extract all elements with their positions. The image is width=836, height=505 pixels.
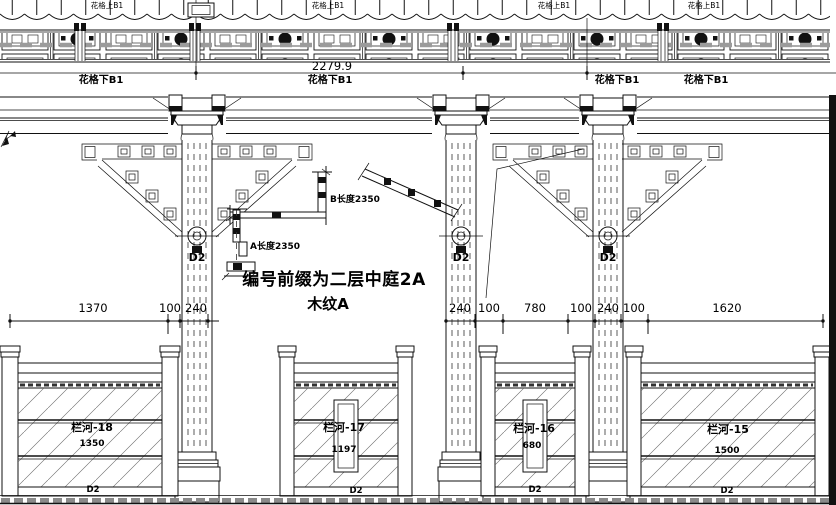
railing-panel-3 (479, 346, 591, 496)
detail-a-label: A长度2350 (250, 243, 300, 252)
panel-1-length: 1350 (79, 440, 104, 449)
dim-right-2: 780 (524, 303, 546, 315)
sheet-right-border (829, 95, 836, 505)
panel-3-name: 栏河-16 (513, 423, 555, 434)
dim-right-1: 100 (478, 303, 500, 315)
band-upper-label-1: 花格上B1 (91, 2, 123, 10)
title-line-1: 编号前缀为二层中庭2A (242, 272, 426, 289)
band-dimension-text: 2279.9 (312, 61, 352, 73)
band-lower-label-4: 花格下B1 (684, 76, 729, 86)
panel-1-mark: D2 (87, 486, 100, 495)
dim-left-1: 100 (159, 303, 181, 315)
column-3-mark: D2 (600, 252, 617, 263)
panel-3-length: 680 (523, 442, 542, 451)
band-lower-label-3: 花格下B1 (595, 76, 640, 86)
detail-b-label: B长度2350 (330, 196, 380, 205)
band-lower-label-2: 花格下B1 (308, 76, 353, 86)
column-2-mark: D2 (453, 252, 470, 263)
panel-4-mark: D2 (721, 487, 734, 496)
railing-panel-4 (625, 346, 831, 496)
cad-elevation-drawing: 花格上B1 花格上B1 花格上B1 花格上B1 2279.9 花格下B1 花格下… (0, 0, 836, 505)
dim-right-4: 240 (597, 303, 619, 315)
detail-b (226, 166, 332, 225)
panel-1-name: 栏河-18 (71, 422, 113, 433)
panel-2-mark: D2 (350, 487, 363, 496)
floor-strip (0, 496, 836, 504)
panel-4-name: 栏河-15 (707, 424, 749, 435)
dim-left-2: 240 (185, 303, 207, 315)
panel-2-name: 栏河-17 (323, 422, 365, 433)
main-dimension-line (8, 314, 824, 334)
band-upper-label-4: 花格上B1 (688, 2, 720, 10)
panel-3-mark: D2 (529, 486, 542, 495)
dim-right-0: 240 (449, 303, 471, 315)
dim-right-3: 100 (570, 303, 592, 315)
column-1-mark: D2 (189, 252, 206, 263)
panel-4-length: 1500 (714, 447, 739, 456)
dim-right-5: 100 (623, 303, 645, 315)
band-upper-label-2: 花格上B1 (312, 2, 344, 10)
band-lower-label-1: 花格下B1 (79, 76, 124, 86)
panel-2-length: 1197 (331, 446, 356, 455)
beam (0, 97, 836, 134)
detail-box-marker (188, 3, 214, 17)
dim-left-0: 1370 (78, 303, 107, 315)
leader-line (486, 149, 583, 298)
title-line-2: 木纹A (307, 297, 349, 312)
band-upper-label-3: 花格上B1 (538, 2, 570, 10)
dim-right-6: 1620 (712, 303, 741, 315)
